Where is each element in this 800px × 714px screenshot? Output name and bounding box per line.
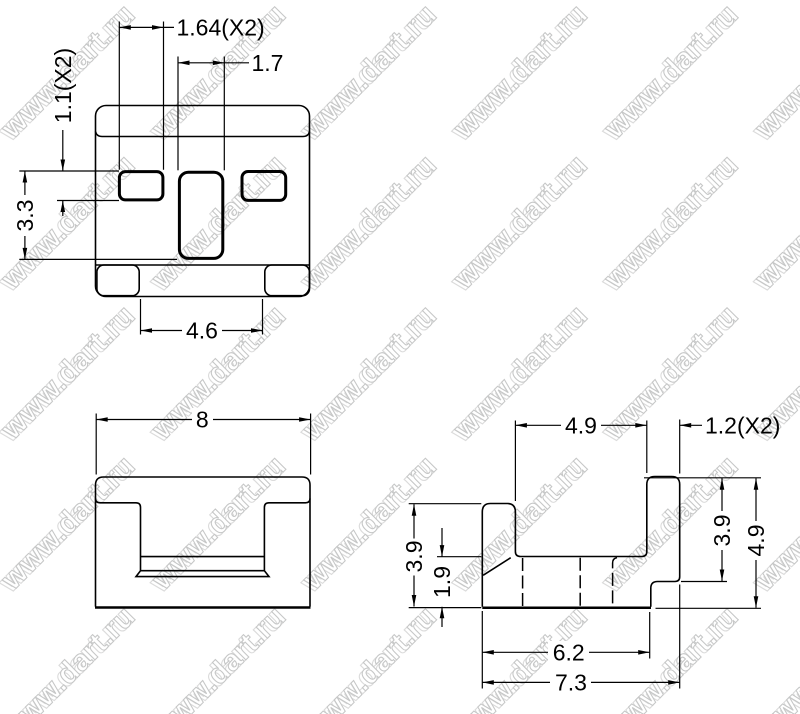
svg-text:4.9: 4.9 (743, 525, 769, 557)
svg-text:1.7: 1.7 (252, 50, 284, 76)
svg-text:3.9: 3.9 (709, 515, 735, 547)
svg-text:6.2: 6.2 (553, 639, 585, 665)
svg-text:3.9: 3.9 (401, 541, 427, 573)
svg-text:1.9: 1.9 (429, 566, 455, 598)
svg-text:1.1(X2): 1.1(X2) (50, 48, 76, 123)
svg-text:7.3: 7.3 (555, 669, 587, 695)
svg-text:1.2(X2): 1.2(X2) (705, 412, 780, 438)
svg-text:8: 8 (196, 407, 209, 433)
svg-text:4.6: 4.6 (186, 318, 218, 344)
svg-text:3.3: 3.3 (12, 200, 38, 232)
svg-text:1.64(X2): 1.64(X2) (177, 14, 265, 40)
svg-text:4.9: 4.9 (565, 412, 597, 438)
